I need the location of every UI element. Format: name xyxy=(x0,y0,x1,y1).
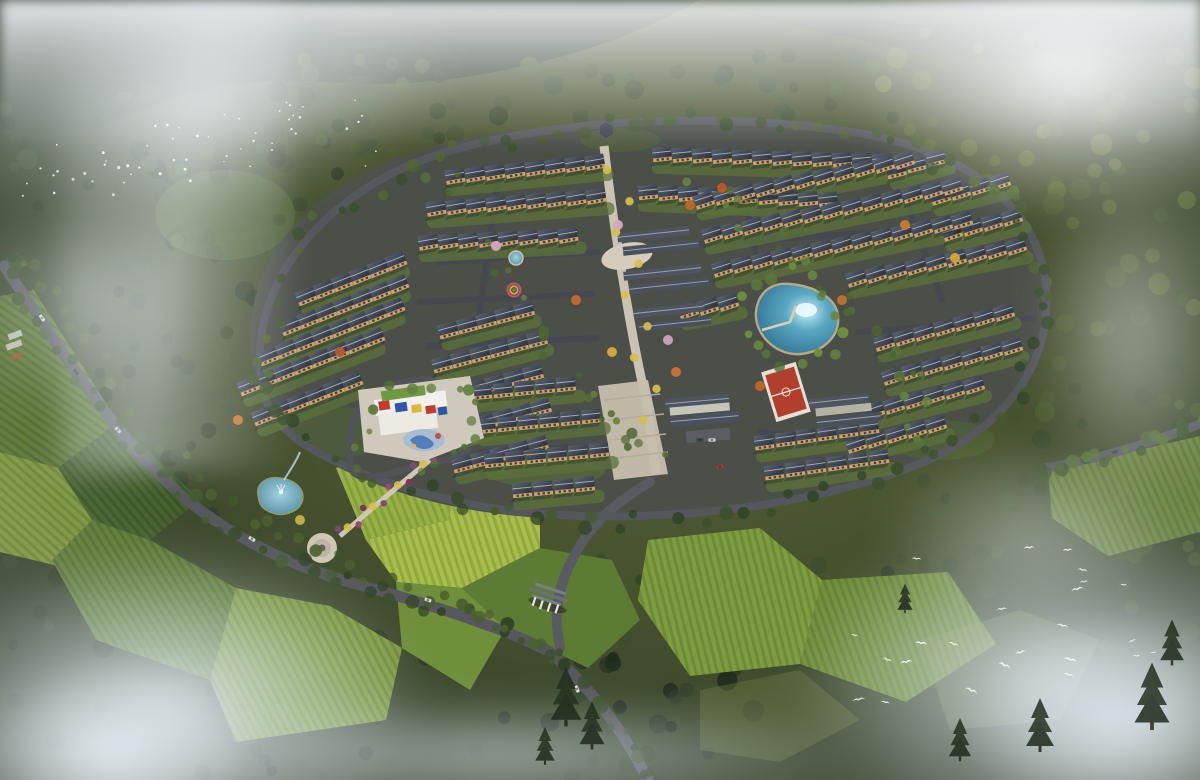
bird-flock-small xyxy=(22,100,377,197)
overlay-canvas xyxy=(0,0,1200,780)
foreground-pines xyxy=(535,584,1184,765)
aerial-rendering xyxy=(0,0,1200,780)
bird-flock-large xyxy=(851,546,1157,704)
